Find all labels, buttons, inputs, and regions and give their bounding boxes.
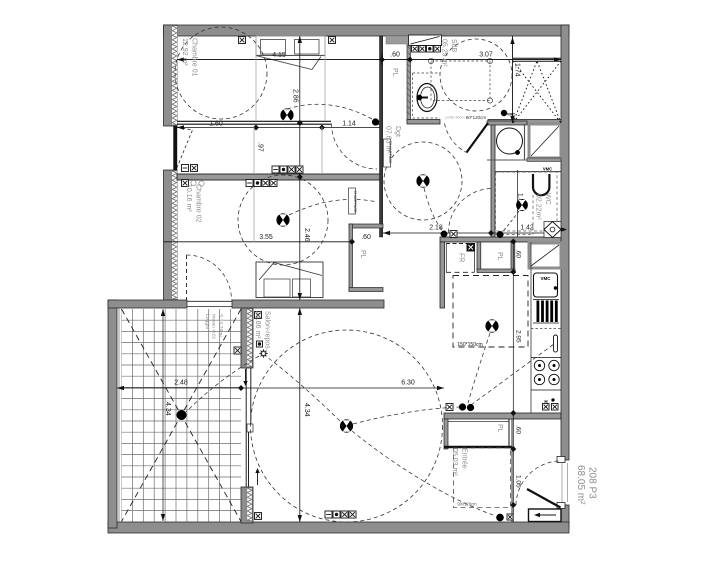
svg-text:07.63 m²: 07.63 m² [385,126,392,154]
svg-text:4.34: 4.34 [164,402,171,416]
svg-text:1.05: 1.05 [515,475,522,488]
svg-text:PL: PL [496,424,503,433]
svg-text:Loggia: Loggia [204,314,210,329]
svg-text:FR: FR [458,253,465,262]
svg-text:.60: .60 [515,249,522,258]
svg-text:208 P3: 208 P3 [587,467,598,499]
svg-text:05.29 m²: 05.29 m² [441,39,448,67]
svg-text:PL: PL [359,250,366,259]
svg-text:2.48: 2.48 [174,380,188,387]
svg-text:Dgt: Dgt [394,126,401,137]
svg-text:2.46: 2.46 [303,228,310,242]
svg-text:3.07: 3.07 [479,52,493,59]
svg-text:PL: PL [391,68,398,77]
svg-text:Chambre 02: Chambre 02 [195,184,202,223]
svg-text:WC: WC [544,193,551,205]
svg-text:Entrée: Entrée [461,448,468,469]
svg-text:VMC: VMC [507,113,516,117]
svg-text:4.34: 4.34 [303,403,310,417]
svg-text:.60: .60 [515,425,522,434]
svg-text:Chambre 01: Chambre 01 [191,38,198,77]
svg-text:porte 90cm: porte 90cm [446,116,465,120]
svg-text:80*120cm: 80*120cm [466,115,487,120]
svg-text:SdB: SdB [450,39,457,53]
svg-text:.60: .60 [390,52,400,59]
svg-text:.97: .97 [257,142,264,152]
svg-text:1.74: 1.74 [514,63,521,77]
svg-text:2.86: 2.86 [292,89,299,103]
svg-text:02.22m²: 02.22m² [535,194,542,220]
svg-text:6.30: 6.30 [401,380,415,387]
svg-text:VMC: VMC [541,276,552,281]
svg-text:3.55: 3.55 [259,234,273,241]
svg-text:VMC: VMC [543,167,552,172]
svg-text:05.03 m²: 05.03 m² [451,448,458,476]
svg-text:24.86 m²: 24.86 m² [254,311,261,339]
svg-text:PL: PL [496,252,503,261]
svg-text:1.60: 1.60 [209,120,223,127]
svg-text:S:10.76m²: S:10.76m² [217,314,223,337]
svg-text:150*150cm: 150*150cm [457,342,482,348]
svg-text:Salon-repos: Salon-repos [264,311,271,349]
svg-text:2.95: 2.95 [515,330,522,343]
svg-text:Niveau -0.02: Niveau -0.02 [212,314,217,339]
svg-text:12.92 m²: 12.92 m² [181,38,188,66]
svg-text:68.05 m²: 68.05 m² [575,465,586,505]
svg-text:CHAUFFAGE: CHAUFFAGE [353,191,357,214]
svg-text:4.15: 4.15 [272,52,286,59]
svg-text:1.42: 1.42 [520,225,534,232]
svg-text:.60: .60 [361,234,371,241]
svg-text:10.16 m²: 10.16 m² [185,184,192,212]
svg-text:1.14: 1.14 [342,120,356,127]
